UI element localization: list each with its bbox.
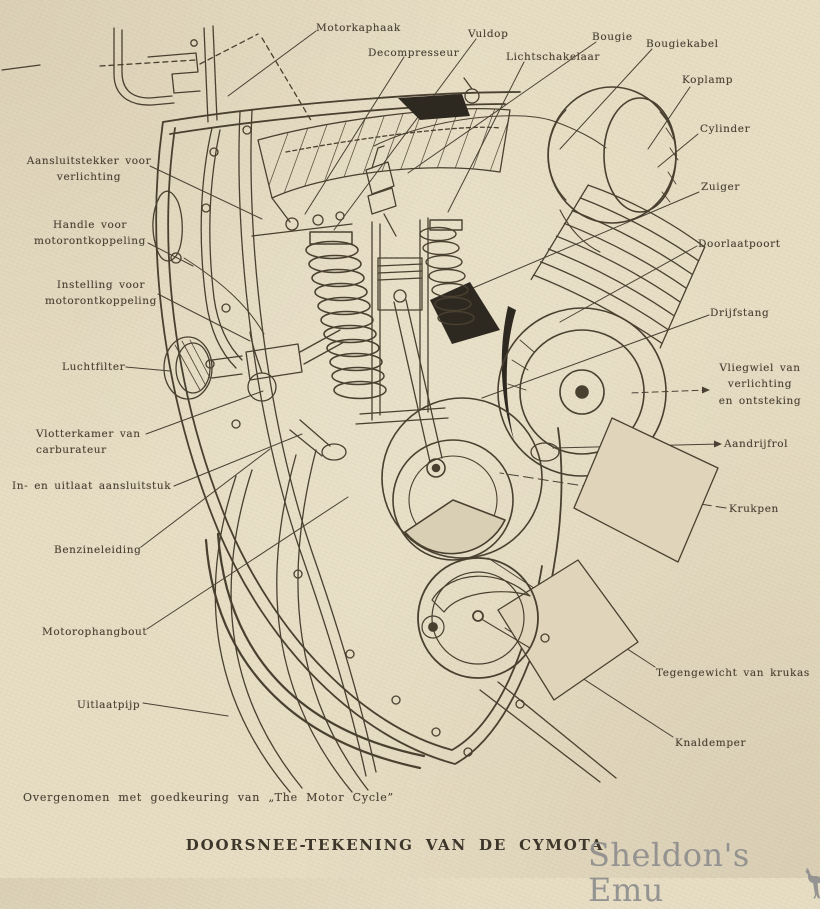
label-bougiekabel: Bougiekabel [646,36,719,52]
label-handle: Handle voor motorontkoppeling [30,217,150,250]
label-aandrijfrol: Aandrijfrol [724,436,788,452]
label-uitlaatpijp: Uitlaatpijp [77,697,140,713]
decompressor-controls [184,198,352,334]
left-spring [306,232,386,399]
label-vuldop: Vuldop [468,26,508,42]
label-luchtfilter: Luchtfilter [62,359,125,375]
label-motorophangbout: Motorophangbout [42,624,147,640]
label-koplamp: Koplamp [682,72,733,88]
fan-blades [480,418,718,782]
emu-icon [793,864,820,908]
label-tegengewicht: Tegengewicht van krukas [656,665,810,681]
light-switch [464,78,479,103]
label-vliegwiel: Vliegwiel van verlichting en ontsteking [712,360,808,409]
crankshaft [382,398,542,560]
label-in-uitlaat: In- en uitlaat aansluitstuk [12,478,171,494]
motor-cover-outline [156,92,561,764]
label-zuiger: Zuiger [701,179,740,195]
label-lichtschakelaar: Lichtschakelaar [506,49,600,65]
label-knaldemper: Knaldemper [675,735,746,751]
label-doorlaatpoort: Doorlaatpoort [698,236,781,252]
label-cylinder: Cylinder [700,121,750,137]
label-drijfstang: Drijfstang [710,305,769,321]
label-benzineleiding: Benzineleiding [54,542,141,558]
label-bougie: Bougie [592,29,633,45]
leader-lines [126,31,726,737]
fork-tube [201,110,376,776]
label-krukpen: Krukpen [729,501,779,517]
figure-credit: Overgenomen met goedkeuring van „The Mot… [23,791,394,804]
label-instelling: Instelling voor motorontkoppeling [42,277,160,310]
figure-page: Motorkaphaak Decompresseur Vuldop Lichts… [0,0,820,878]
cylinder-fins [531,178,714,348]
label-aansluitstekker: Aansluitstekker voor verlichting [26,153,152,186]
bolts [202,126,549,756]
label-vlotterkamer: Vlotterkamer van carburateur [36,426,141,459]
headlamp [548,87,678,252]
watermark-text: Sheldon's Emu [588,838,793,908]
label-motorkaphaak: Motorkaphaak [316,20,401,36]
label-decompresseur: Decompresseur [368,45,459,61]
watermark: Sheldon's Emu [588,838,820,908]
